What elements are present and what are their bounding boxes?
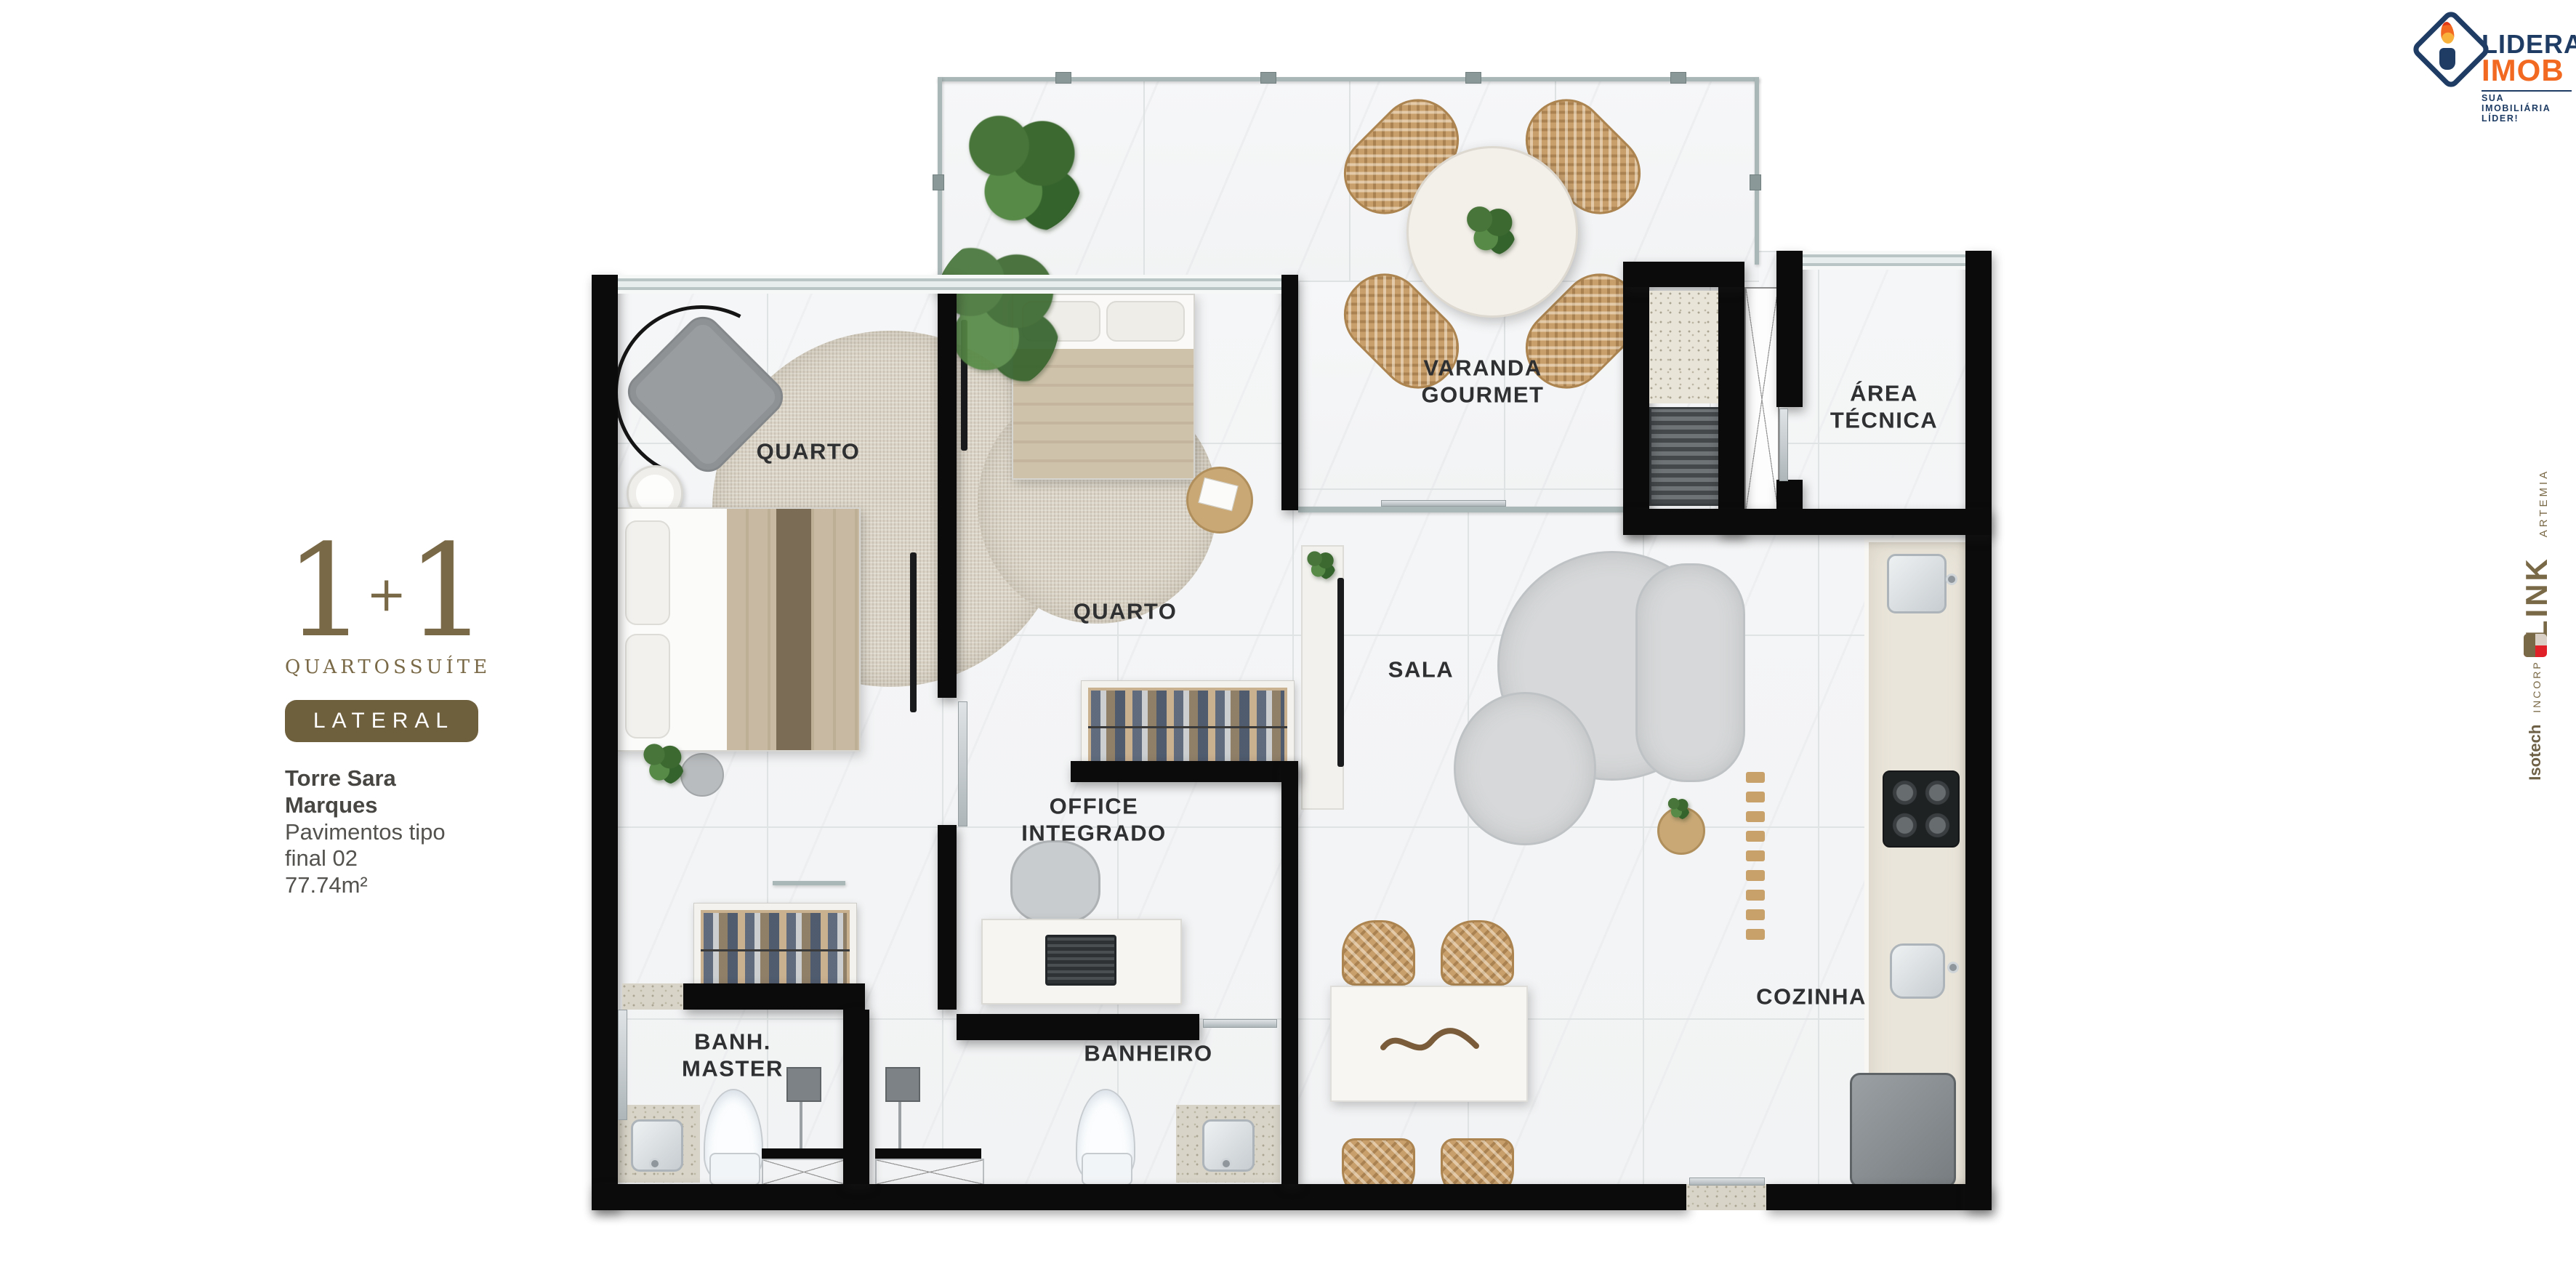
railing-clip — [1465, 72, 1481, 84]
railing-clip — [933, 174, 944, 190]
slat-divider — [1746, 870, 1765, 881]
wall-bottom-right — [1766, 1184, 1992, 1210]
tv-quarto1 — [910, 552, 917, 712]
room-label-area-tecnica: ÁREA TÉCNICA — [1830, 380, 1938, 433]
faucet-banh-master — [651, 1160, 659, 1167]
table-centerpiece — [1374, 1024, 1484, 1063]
towel-rail — [773, 881, 845, 885]
side-brand-isotech-incorp: IsotechINCORP — [2526, 660, 2545, 780]
fist-icon — [2439, 48, 2455, 70]
area-text: 77.74m² — [285, 872, 478, 899]
office-chair — [1010, 840, 1100, 923]
shower-tray-banheiro — [875, 1159, 984, 1186]
logo-line2: IMOB — [2482, 56, 2576, 84]
banheiro-door-leaf — [1203, 1019, 1277, 1028]
toilet-tank — [1082, 1153, 1132, 1186]
slat-divider — [1746, 890, 1765, 901]
room-label-cozinha: COZINHA — [1756, 984, 1867, 1011]
unit-description: Torre Sara Marques Pavimentos tipo final… — [285, 765, 478, 898]
wall-bedroom-divider — [938, 294, 957, 698]
room-label-quarto1: QUARTO — [757, 439, 861, 466]
slat-divider — [1746, 850, 1765, 861]
shower-halfwall — [762, 1148, 843, 1159]
slat-divider — [1746, 792, 1765, 802]
suite-label: SUÍTE — [410, 656, 491, 678]
railing-clip — [1055, 72, 1071, 84]
sofa-extension — [1635, 563, 1745, 782]
wall-bathroom-divider — [843, 1010, 869, 1184]
railing-clip — [1260, 72, 1276, 84]
wall-tech-left-lower — [1776, 480, 1803, 509]
info-panel: 1 + 1 QUARTOS SUÍTE LATERAL Torre Sara M… — [285, 536, 478, 898]
sliding-door-panel — [1381, 500, 1506, 507]
quartos-count: 1 — [285, 536, 366, 646]
wall-office-top — [1071, 761, 1298, 782]
incorp-square-logo — [2524, 634, 2547, 657]
logo-tagline: SUA IMOBILIÁRIA LÍDER! — [2482, 90, 2572, 124]
unit-sublabels: QUARTOS SUÍTE — [285, 656, 478, 678]
incorp-brand-text: INCORP — [2531, 660, 2543, 712]
entry-threshold — [1686, 1184, 1766, 1210]
wall-banheiro-top — [957, 1014, 1199, 1040]
floorplan-page: VARANDA GOURMET ÁREA TÉCNICA QUARTO QUAR… — [0, 0, 2576, 1288]
table-plant-centerpiece — [1464, 204, 1516, 256]
entry-door-leaf — [1689, 1178, 1765, 1186]
dining-chair — [1441, 920, 1514, 986]
plant-quarto1 — [641, 741, 685, 785]
logo-line1: LIDERA — [2482, 32, 2576, 56]
cooktop — [1883, 770, 1960, 848]
plant-console — [1305, 550, 1336, 580]
sliding-door-bedroom — [958, 701, 967, 826]
railing-clip — [1670, 72, 1686, 84]
plant-fiddle-leaf — [963, 108, 1083, 235]
glass-railing-right — [1755, 77, 1759, 265]
wall-bbq-left — [1623, 287, 1649, 535]
wall-quarto2-right — [1281, 275, 1298, 510]
wall-bottom-left — [592, 1184, 1686, 1210]
shaft-duct — [1744, 287, 1779, 512]
slat-divider — [1746, 909, 1765, 920]
throw-blanket — [776, 509, 811, 750]
tv-sala — [1337, 578, 1344, 767]
sofa-chaise — [1454, 692, 1596, 845]
pillow — [625, 634, 670, 738]
laptop — [1045, 935, 1116, 986]
barbecue-grill — [1649, 407, 1723, 506]
plus-sign: + — [366, 566, 406, 622]
unit-numbers: 1 + 1 — [285, 536, 478, 646]
wall-bedroom-divider-lower — [938, 825, 957, 1010]
window-band-tech-area — [1803, 251, 1965, 270]
isotech-brand-text: Isotech — [2526, 725, 2544, 781]
banh-master-door-leaf — [618, 1010, 627, 1120]
wall-left — [592, 275, 618, 1210]
position-badge: LATERAL — [285, 700, 478, 742]
faucet-banheiro — [1223, 1160, 1230, 1167]
link-brand-text: LINK — [2519, 556, 2553, 639]
kitchen-sink-lower — [1890, 943, 1945, 999]
slat-divider — [1746, 831, 1765, 842]
wall-bbq-right — [1718, 287, 1744, 535]
lidera-imob-logo: LIDERA IMOB SUA IMOBILIÁRIA LÍDER! — [2412, 10, 2572, 97]
bed-quarto1 — [616, 507, 861, 752]
suite-count: 1 — [406, 536, 488, 646]
wall-kitchen-top — [1623, 509, 1992, 535]
floors-text: Pavimentos tipo final 02 — [285, 819, 478, 872]
plant-side-table — [1667, 797, 1690, 820]
tech-door-leaf — [1779, 408, 1788, 481]
room-label-quarto2: QUARTO — [1074, 599, 1178, 626]
wall-right — [1965, 251, 1992, 1210]
shower-pipe — [800, 1099, 802, 1151]
slat-divider — [1746, 772, 1765, 783]
kitchen-sink-upper — [1887, 554, 1947, 613]
shower-tray-master — [762, 1159, 846, 1186]
tower-name: Torre Sara Marques — [285, 765, 478, 818]
slat-divider — [1746, 811, 1765, 822]
wall-tech-left-upper — [1776, 251, 1803, 407]
room-label-sala: SALA — [1388, 657, 1454, 684]
wall-bbq-top — [1623, 262, 1744, 287]
sliding-door-sala — [1298, 507, 1623, 512]
dining-table — [1330, 986, 1528, 1102]
logo-wordmark: LIDERA IMOB — [2482, 32, 2576, 85]
railing-clip — [1750, 174, 1761, 190]
pillow — [625, 520, 670, 625]
side-brand-link-artemia: LINKARTEMIA — [2519, 469, 2554, 639]
slat-divider — [1746, 929, 1765, 940]
gourmet-counter — [1649, 291, 1718, 403]
room-label-banh-master: BANH. MASTER — [682, 1029, 784, 1082]
toilet-tank — [709, 1153, 760, 1186]
banh-master-threshold — [622, 983, 683, 1010]
window-band-bedrooms — [618, 275, 1281, 294]
shower-head-banheiro — [885, 1067, 920, 1102]
fridge — [1850, 1073, 1956, 1188]
wall-banh-master-top — [683, 983, 865, 1010]
pillow — [1106, 301, 1185, 342]
kitchen-faucet-lower — [1949, 964, 1957, 971]
room-label-varanda: VARANDA GOURMET — [1422, 355, 1545, 408]
room-label-office: OFFICE INTEGRADO — [1021, 793, 1167, 846]
shower-pipe — [898, 1099, 901, 1151]
wardrobe-quarto2 — [1082, 681, 1294, 771]
artemia-brand-text: ARTEMIA — [2537, 469, 2550, 537]
kitchen-faucet-upper — [1948, 576, 1955, 583]
shower-halfwall — [875, 1148, 981, 1159]
quartos-label: QUARTOS — [285, 656, 410, 678]
room-label-banheiro: BANHEIRO — [1084, 1041, 1212, 1068]
dining-chair — [1342, 920, 1415, 986]
wardrobe-quarto1 — [694, 903, 856, 994]
stool-quarto1 — [680, 753, 724, 797]
shower-head-master — [786, 1067, 821, 1102]
wall-sala-office — [1281, 761, 1298, 1184]
outside-area — [0, 0, 938, 281]
